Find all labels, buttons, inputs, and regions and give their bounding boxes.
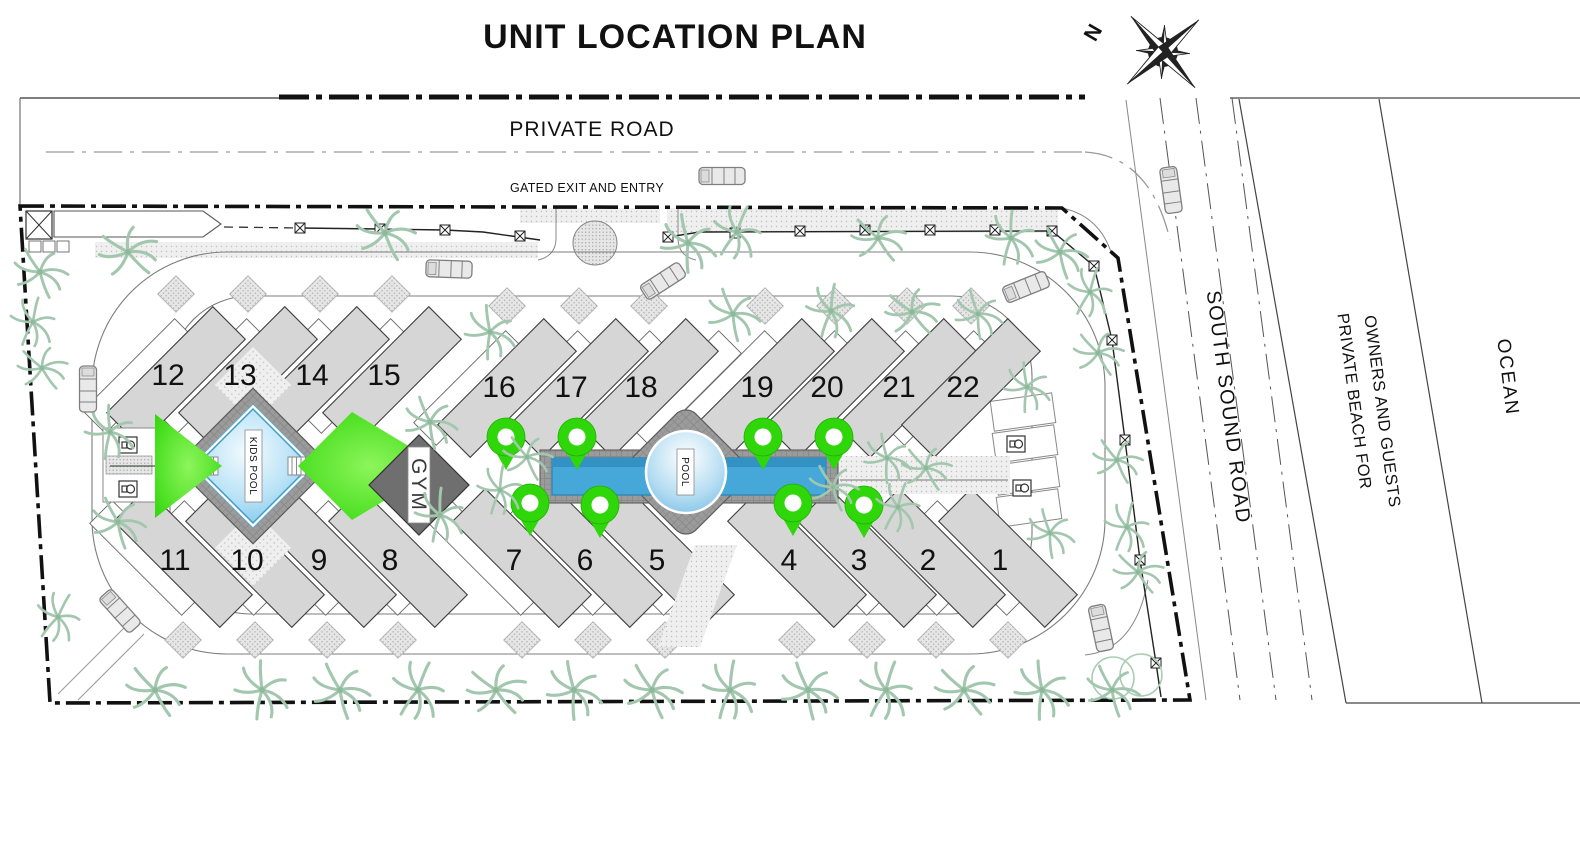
fence-post-icon bbox=[440, 225, 450, 235]
palm-tree-icon bbox=[391, 658, 447, 722]
palm-tree-icon bbox=[932, 661, 996, 717]
palm-tree-icon bbox=[1079, 657, 1146, 721]
car-icon bbox=[1159, 166, 1182, 214]
unit-label-22: 22 bbox=[946, 371, 979, 404]
car-icon bbox=[639, 261, 687, 300]
unit-label-2: 2 bbox=[920, 544, 937, 577]
palm-tree-icon bbox=[227, 652, 298, 726]
fence-post-icon bbox=[795, 226, 805, 236]
private-road-label: PRIVATE ROAD bbox=[509, 118, 674, 141]
palm-tree-icon bbox=[1007, 652, 1080, 726]
unit-label-9: 9 bbox=[311, 544, 328, 577]
utility-box-icon bbox=[119, 481, 137, 497]
palm-tree-icon bbox=[1101, 497, 1155, 556]
palm-tree-icon bbox=[1066, 263, 1117, 320]
unit-label-19: 19 bbox=[740, 371, 773, 404]
palm-tree-icon bbox=[1088, 432, 1147, 486]
ocean-label: OCEAN bbox=[1492, 338, 1522, 418]
unit-label-21: 21 bbox=[882, 371, 915, 404]
car-icon bbox=[98, 588, 141, 634]
pool-label: POOL bbox=[679, 457, 690, 487]
palm-tree-icon bbox=[304, 654, 377, 723]
car-icon bbox=[1001, 271, 1050, 304]
pin-icon bbox=[487, 418, 525, 470]
unit-label-20: 20 bbox=[810, 371, 843, 404]
car-icon bbox=[426, 260, 473, 279]
fence-post-icon bbox=[515, 231, 525, 241]
page-title: UNIT LOCATION PLAN bbox=[483, 18, 867, 56]
unit-label-3: 3 bbox=[851, 544, 868, 577]
palm-tree-icon bbox=[122, 659, 189, 719]
utility-box-icon bbox=[1013, 480, 1031, 496]
palm-tree-icon bbox=[698, 654, 765, 726]
palm-tree-icon bbox=[15, 343, 70, 390]
fence-post-icon bbox=[925, 225, 935, 235]
fence-post-icon bbox=[1107, 335, 1117, 345]
palm-tree-icon bbox=[7, 292, 61, 351]
beach-parcel bbox=[1230, 98, 1580, 703]
palm-tree-icon bbox=[857, 656, 917, 723]
unit-label-6: 6 bbox=[577, 544, 594, 577]
gym-label: GYM bbox=[407, 458, 430, 512]
unit-label-17: 17 bbox=[554, 371, 587, 404]
south-sound-road-label: SOUTH SOUND ROAD bbox=[1202, 289, 1255, 525]
palm-tree-icon bbox=[466, 663, 527, 715]
kids-pool-label: KIDS POOL bbox=[247, 437, 258, 495]
car-icon bbox=[80, 366, 97, 412]
utility-box-icon bbox=[1007, 436, 1025, 452]
unit-label-10: 10 bbox=[230, 544, 263, 577]
unit-label-12: 12 bbox=[151, 359, 184, 392]
unit-label-11: 11 bbox=[159, 544, 190, 577]
unit-label-15: 15 bbox=[367, 359, 400, 392]
palm-tree-icon bbox=[538, 652, 612, 726]
palm-tree-icon bbox=[617, 656, 689, 723]
gated-exit-entry-label: GATED EXIT AND ENTRY bbox=[510, 181, 664, 195]
site-plan: SOUTH SOUND ROAD PRIVATE BEACH FOR OWNER… bbox=[0, 0, 1580, 846]
fence-post-icon bbox=[295, 223, 305, 233]
unit-label-1: 1 bbox=[992, 544, 1009, 577]
palm-tree-icon bbox=[1111, 547, 1166, 594]
unit-label-14: 14 bbox=[295, 359, 328, 392]
compass-north-label: N bbox=[1080, 20, 1108, 45]
unit-label-7: 7 bbox=[506, 544, 523, 577]
compass-rose-icon bbox=[1095, 0, 1231, 120]
palm-tree-icon bbox=[772, 653, 846, 724]
unit-label-18: 18 bbox=[624, 371, 657, 404]
unit-label-13: 13 bbox=[223, 359, 256, 392]
palm-tree-icon bbox=[1070, 327, 1127, 378]
unit-label-8: 8 bbox=[382, 544, 399, 577]
unit-label-16: 16 bbox=[482, 371, 515, 404]
car-icon bbox=[699, 168, 745, 185]
unit-label-4: 4 bbox=[781, 544, 798, 577]
car-icon bbox=[1088, 604, 1114, 653]
unit-label-5: 5 bbox=[649, 544, 666, 577]
entry-island bbox=[573, 221, 617, 265]
